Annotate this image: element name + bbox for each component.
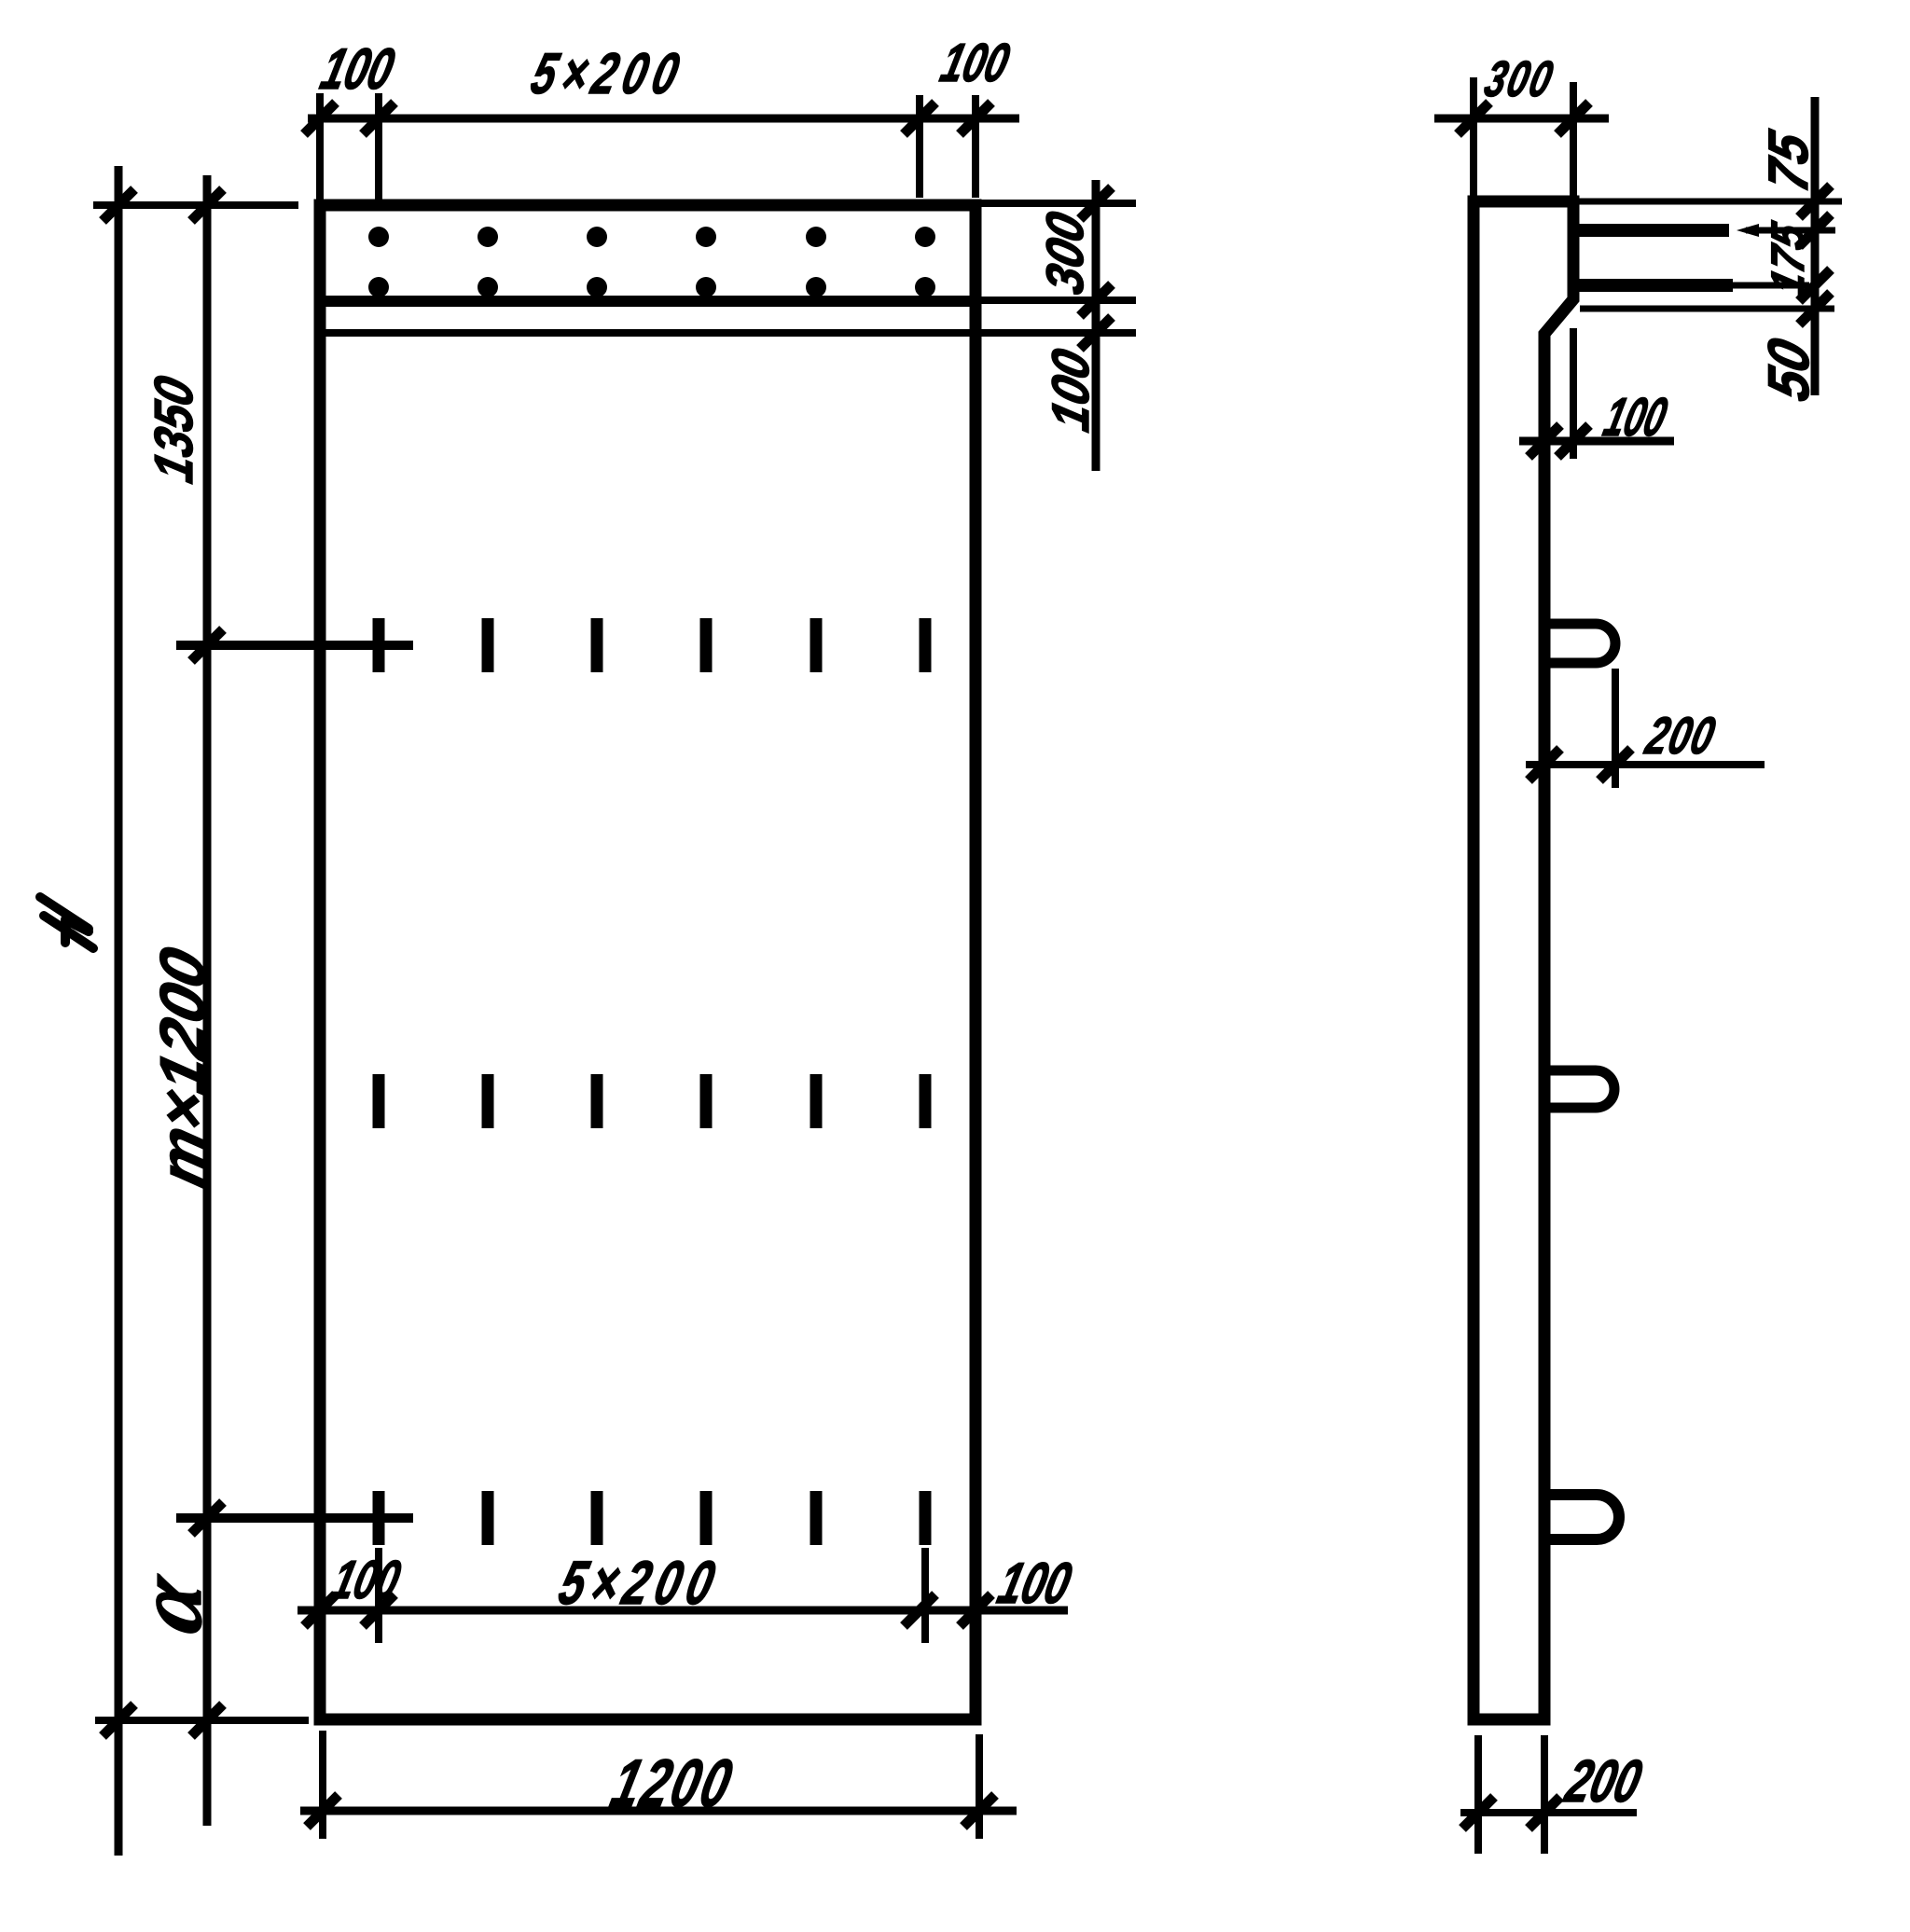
svg-text:1200: 1200 xyxy=(604,1746,741,1821)
svg-text:300: 300 xyxy=(1036,207,1094,300)
svg-text:100: 100 xyxy=(1042,344,1100,437)
svg-text:1350: 1350 xyxy=(143,370,204,488)
svg-text:175: 175 xyxy=(1763,217,1815,301)
svg-text:m×1200: m×1200 xyxy=(146,941,218,1194)
svg-text:5×200: 5×200 xyxy=(525,41,692,106)
svg-text:300: 300 xyxy=(1479,52,1559,108)
svg-text:5×200: 5×200 xyxy=(553,1550,728,1618)
